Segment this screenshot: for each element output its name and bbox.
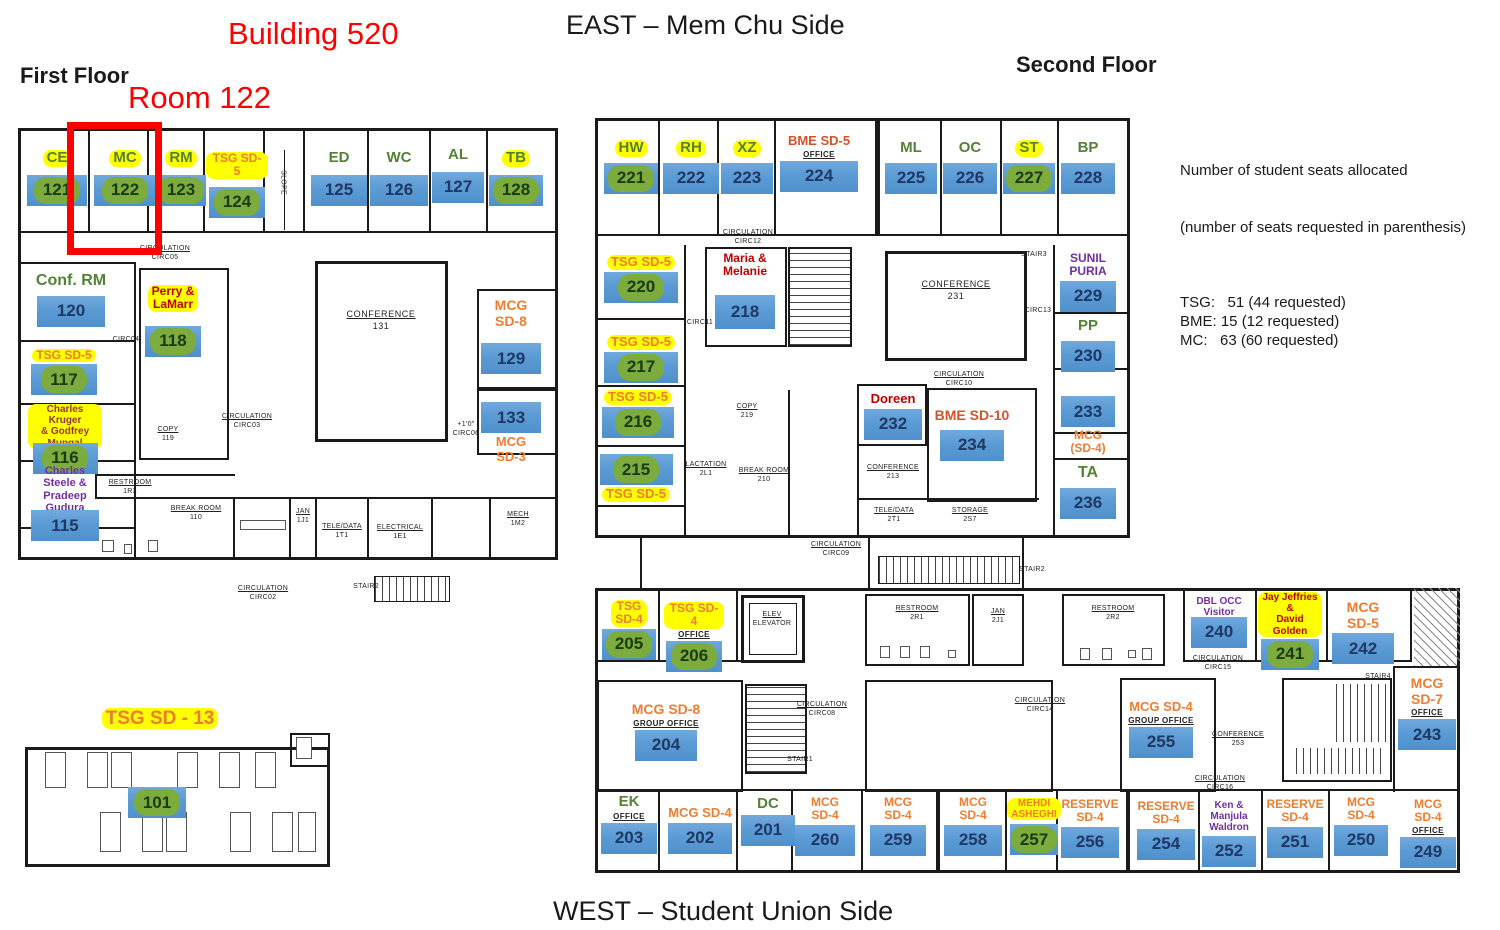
- plan-label-circulation: CIRCULATIONCIRC10: [934, 370, 984, 388]
- room-232: Doreen232: [862, 392, 924, 440]
- room-255: MCG SD-4GROUP OFFICE255: [1124, 700, 1198, 758]
- room-number-pill: 101: [134, 789, 180, 816]
- room-259: MCG SD-4259: [868, 796, 928, 856]
- west-side-label: WEST – Student Union Side: [553, 896, 893, 927]
- room-number-pill: 206: [671, 643, 717, 670]
- room-label: MCG SD-4: [1410, 798, 1446, 825]
- furniture: [45, 752, 66, 788]
- room-label: Charles Steele & Pradeep Gudura: [26, 465, 104, 514]
- wall: [640, 538, 642, 588]
- wall: [595, 318, 684, 320]
- wall: [595, 505, 684, 507]
- room-label: OC: [955, 140, 986, 157]
- room-label: Maria & Melanie: [719, 252, 771, 279]
- room-label: TSG SD-5: [32, 349, 95, 362]
- furniture: [166, 812, 187, 852]
- room-number: 260: [795, 825, 855, 856]
- room-number-pill: 257: [1011, 826, 1057, 853]
- room-label: SUNIL PURIA: [1065, 252, 1110, 279]
- first-floor-label: First Floor: [20, 63, 129, 89]
- wall: [303, 128, 305, 233]
- room-number-pill: 215: [613, 456, 659, 483]
- room-label: ED: [325, 150, 354, 167]
- plan-label-conference: CONFERENCE253: [1212, 730, 1264, 748]
- room-label: TSG SD-5: [607, 335, 675, 350]
- plan-label-circulation: CIRCULATIONCIRC08: [797, 700, 847, 718]
- furniture: [240, 520, 286, 530]
- room-number: 243: [1398, 719, 1456, 750]
- wall: [431, 497, 433, 560]
- room-label: MCG SD-8: [628, 702, 704, 718]
- room-label: ST: [1015, 140, 1042, 157]
- room-number: 124: [209, 187, 265, 218]
- room-number: 220: [604, 272, 678, 303]
- room-label: TB: [502, 150, 530, 167]
- stairs: [1296, 748, 1384, 774]
- room-225: ML225: [884, 140, 938, 194]
- room-label: MCG SD-4: [1125, 700, 1197, 715]
- wall: [936, 789, 940, 873]
- wall: [875, 118, 880, 235]
- room-number: 204: [635, 730, 697, 761]
- room-label: RM: [165, 150, 196, 167]
- room-number: 250: [1334, 825, 1388, 856]
- room-label: Ken & Manjula Waldron: [1200, 800, 1258, 834]
- wall: [1005, 789, 1007, 873]
- room-label: MEHDI ASHEGHI: [1007, 798, 1061, 820]
- room-label: MCG SD-4: [880, 796, 916, 823]
- hatched-area: [1414, 588, 1460, 666]
- room-240: DBL OCC Visitor Emeriti240: [1186, 596, 1252, 648]
- plan-label-stair2: STAIR2: [1019, 565, 1045, 574]
- wall: [233, 497, 235, 560]
- plan-label-restroom: RESTROOM2R1: [896, 604, 939, 622]
- room-number: 230: [1061, 341, 1115, 372]
- room-label: MCG SD-4: [807, 796, 843, 823]
- plan-label-circulation: CIRCULATIONCIRC02: [238, 584, 288, 602]
- room-number-pill: 227: [1006, 165, 1052, 192]
- wall: [134, 262, 136, 560]
- furniture: [142, 812, 163, 852]
- wall: [861, 789, 863, 873]
- room-133: 133MCG SD-3: [480, 400, 542, 464]
- wall: [595, 445, 684, 447]
- room-tsg-sd-13: TSG SD - 13: [92, 708, 228, 729]
- room-128: TB128: [488, 150, 544, 206]
- building-title: Building 520: [228, 16, 399, 52]
- room-label: MCG (SD-4): [1066, 429, 1109, 456]
- plan-label-restroom: RESTROOM1R3: [109, 478, 152, 496]
- room-number: 224: [780, 161, 858, 192]
- furniture: [87, 752, 108, 788]
- wall: [489, 497, 491, 560]
- room-number-pill: 220: [618, 274, 664, 301]
- room-125: ED125: [310, 150, 368, 206]
- room-number: 249: [1400, 837, 1456, 868]
- room-number: 118: [145, 326, 201, 357]
- seat-allocation-legend: Number of student seats allocated (numbe…: [1180, 123, 1466, 388]
- room-number: 127: [432, 172, 484, 203]
- wall: [1393, 666, 1395, 792]
- plan-label-circ11: CIRC11: [687, 318, 713, 327]
- plan-label-circulation: CIRCULATIONCIRC12: [723, 228, 773, 246]
- room-label: RESERVE SD-4: [1262, 798, 1327, 825]
- plan-label-circ04: CIRC04: [113, 335, 140, 344]
- room-number: 120: [37, 296, 105, 327]
- room-label: MCG SD-8: [491, 298, 532, 329]
- room-sublabel: OFFICE: [613, 812, 645, 821]
- room-sublabel: GROUP OFFICE: [633, 719, 699, 728]
- room-number: 202: [668, 823, 732, 854]
- room-number: 101: [128, 787, 186, 818]
- wall: [658, 789, 660, 873]
- room-251: RESERVE SD-4251: [1264, 798, 1326, 858]
- room-number: 203: [601, 823, 657, 854]
- room-label: BME SD-5: [784, 134, 854, 149]
- room-label: XZ: [733, 140, 760, 157]
- room-label: MCG SD-3: [480, 435, 542, 464]
- room-label: Perry & LaMarr: [148, 285, 199, 312]
- room-250: MCG SD-4250: [1332, 796, 1390, 856]
- room-number-pill: 241: [1267, 641, 1313, 668]
- room-201: DC201: [740, 796, 796, 846]
- room-number: 218: [715, 295, 775, 329]
- room-number-pill: 118: [150, 328, 195, 355]
- room-number: 227: [1003, 163, 1055, 194]
- room-218: Maria & Melanie218: [712, 252, 778, 329]
- room-number: 258: [944, 825, 1002, 856]
- room-229: SUNIL PURIA229: [1056, 252, 1120, 312]
- room-label: DC: [753, 796, 783, 813]
- room-label: MCG SD-4: [955, 796, 991, 823]
- room-124: TSG SD-5124: [206, 152, 268, 218]
- room-206: TSG SD-4OFFICE206: [664, 602, 724, 672]
- room-number: 125: [311, 175, 367, 206]
- room-120: Conf. RM120: [28, 272, 114, 327]
- plan-label-circulation: CIRCULATIONCIRC16: [1195, 774, 1245, 792]
- room-118: Perry & LaMarr118: [142, 285, 204, 357]
- room-label: MCG SD-5: [1330, 600, 1396, 631]
- furniture: [219, 752, 240, 788]
- plan-label-lactation: LACTATION2L1: [686, 460, 727, 478]
- wall: [788, 390, 790, 536]
- room-220: TSG SD-5220: [602, 255, 680, 303]
- furniture: [298, 812, 316, 852]
- plan-label-storage: STORAGE2S7: [952, 506, 988, 524]
- room-label: TA: [1074, 464, 1102, 482]
- wall: [1326, 588, 1328, 662]
- room-254: RESERVE SD-4254: [1136, 800, 1196, 860]
- legend-entry: MC: 63 (60 requested): [1180, 331, 1466, 350]
- furniture: [1128, 650, 1136, 658]
- plan-label-stair1: STAIR1: [787, 755, 813, 764]
- room-label: MCG SD-4: [1343, 796, 1379, 823]
- room-243: MCG SD-7OFFICE243: [1396, 676, 1458, 750]
- room-123: RM123: [156, 150, 206, 206]
- room-252: Ken & Manjula Waldron252: [1200, 800, 1258, 867]
- wall: [315, 261, 448, 442]
- room-label: RESERVE SD-4: [1133, 800, 1198, 827]
- room-number: 254: [1137, 829, 1195, 860]
- room-number-pill: 216: [615, 409, 661, 436]
- wall: [658, 588, 660, 660]
- plan-label-circulation: CIRCULATIONCIRC15: [1193, 654, 1243, 672]
- plan-label-circ13: CIRC13: [1025, 306, 1052, 315]
- room-label: TSG SD-5: [602, 487, 670, 502]
- room-label: EK: [615, 794, 644, 811]
- room-label: Doreen: [867, 392, 920, 407]
- wall: [367, 497, 369, 560]
- room-number: 240: [1191, 617, 1247, 648]
- furniture: [900, 646, 910, 658]
- plan-label-circulation: CIRCULATIONCIRC14: [1015, 696, 1065, 714]
- stairs: [1336, 684, 1388, 742]
- room-label: AL: [444, 147, 472, 164]
- plan-label-conference: CONFERENCE131: [346, 309, 415, 332]
- room-number: 133: [481, 402, 541, 433]
- room-223: XZ223: [720, 140, 774, 194]
- furniture: [100, 812, 121, 852]
- room-number: 251: [1267, 827, 1323, 858]
- furniture: [255, 752, 276, 788]
- room-117: TSG SD-5117: [28, 349, 100, 395]
- wall: [1183, 588, 1185, 662]
- room-number: 215: [600, 454, 673, 485]
- wall: [857, 498, 1039, 500]
- room-221: HW221: [602, 140, 660, 194]
- wall: [289, 497, 291, 560]
- room-number: 205: [602, 629, 656, 660]
- plan-label-tele-data: TELE/DATA2T1: [874, 506, 914, 524]
- legend-heading-line2: (number of seats requested in parenthesi…: [1180, 218, 1466, 237]
- room-label: Jay Jeffries & David Golden: [1258, 592, 1322, 637]
- room-sublabel: OFFICE: [1412, 826, 1444, 835]
- room-number: 123: [156, 175, 206, 206]
- furniture: [102, 540, 114, 552]
- plan-label-slope: SLOPE: [278, 170, 287, 195]
- plan-label-jan: JAN1J1: [296, 507, 310, 525]
- room-228: BP228: [1060, 140, 1116, 194]
- room-number: 206: [666, 641, 722, 672]
- room-label: MCG SD-4: [664, 806, 736, 821]
- floor-plan-canvas: Building 520 EAST – Mem Chu Side First F…: [0, 0, 1500, 930]
- room-number-pill: 117: [41, 366, 86, 393]
- wall: [736, 789, 738, 873]
- room-224: BME SD-5OFFICE224: [776, 134, 862, 192]
- room-number: 234: [940, 430, 1004, 461]
- room-122-highlight-box: [67, 122, 162, 255]
- room-256: RESERVE SD-4256: [1060, 798, 1120, 858]
- plan-label-break-room: BREAK ROOM210: [739, 466, 789, 484]
- wall: [1022, 538, 1024, 588]
- room-227: ST227: [1002, 140, 1056, 194]
- room-label: TSG SD-4: [664, 602, 724, 629]
- plan-label-tele-data: TELE/DATA1T1: [322, 522, 362, 540]
- room-label: HW: [615, 140, 648, 157]
- room-202: MCG SD-4202: [664, 806, 736, 854]
- room-number: 256: [1061, 827, 1119, 858]
- room-label: RESERVE SD-4: [1057, 798, 1122, 825]
- room-215: 215TSG SD-5: [598, 452, 674, 502]
- wall: [1053, 312, 1130, 314]
- wall: [1053, 245, 1055, 536]
- room-number: 242: [1332, 633, 1394, 664]
- wall: [315, 497, 317, 560]
- room-number-pill: 205: [606, 631, 652, 658]
- furniture: [880, 646, 890, 658]
- room-number: 252: [1202, 836, 1256, 867]
- room-number: 126: [370, 175, 428, 206]
- plan-label-circulation: CIRCULATIONCIRC03: [222, 412, 272, 430]
- room-label: TSG SD - 13: [102, 708, 219, 729]
- plan-label-electrical: ELECTRICAL1E1: [377, 523, 423, 541]
- room-216: TSG SD-5216: [600, 390, 676, 438]
- wall: [857, 446, 859, 536]
- room-number: 257: [1010, 824, 1058, 855]
- plan-label-restroom: RESTROOM2R2: [1092, 604, 1135, 622]
- room-sublabel: OFFICE: [1411, 708, 1443, 717]
- legend-heading-line1: Number of student seats allocated: [1180, 161, 1466, 180]
- room-number: 233: [1061, 396, 1115, 427]
- room-234: BME SD-10234: [928, 408, 1016, 461]
- room-label: Conf. RM: [32, 272, 110, 290]
- room-258: MCG SD-4258: [942, 796, 1004, 856]
- room-127: AL127: [430, 147, 486, 203]
- second-floor-label: Second Floor: [1016, 52, 1157, 78]
- room-205: TSG SD-4205: [600, 600, 658, 660]
- room-label: BME SD-10: [931, 408, 1014, 424]
- legend-entries: TSG: 51 (44 requested)BME: 15 (12 reques…: [1180, 293, 1466, 350]
- furniture: [1142, 648, 1152, 660]
- wall: [1053, 458, 1130, 460]
- furniture: [230, 812, 251, 852]
- room-number-pill: 221: [608, 165, 654, 192]
- plan-label-conference: CONFERENCE231: [921, 279, 990, 302]
- wall: [1328, 789, 1330, 873]
- room-sublabel: OFFICE: [803, 150, 835, 159]
- room-label: WC: [383, 150, 416, 167]
- plan-label-copy: COPY219: [736, 402, 757, 420]
- room-257: MEHDI ASHEGHI257: [1008, 798, 1060, 855]
- stairs: [374, 576, 450, 602]
- room-number: 216: [602, 407, 674, 438]
- legend-entry: TSG: 51 (44 requested): [1180, 293, 1466, 312]
- room-number: 117: [31, 364, 97, 395]
- room-101: 101: [126, 785, 188, 818]
- room-number: 259: [870, 825, 926, 856]
- wall: [736, 588, 738, 660]
- wall: [595, 789, 1460, 791]
- room-number: 241: [1261, 639, 1319, 670]
- room-204: MCG SD-8GROUP OFFICE204: [620, 702, 712, 761]
- room-number-pill: 124: [214, 189, 260, 216]
- wall: [18, 262, 136, 264]
- plan-label-circulation: CIRCULATIONCIRC09: [811, 540, 861, 558]
- room-129: MCG SD-8129: [480, 298, 542, 374]
- plan-label-mech: MECH1M2: [507, 510, 529, 528]
- room-122-callout: Room 122: [128, 80, 271, 116]
- room-label: TSG SD-5: [206, 152, 268, 179]
- room-number: 217: [604, 352, 678, 383]
- wall: [1126, 789, 1130, 873]
- room-number: 221: [604, 163, 658, 194]
- room-233: 233MCG (SD-4): [1058, 394, 1118, 456]
- furniture: [1080, 648, 1090, 660]
- stairs: [878, 556, 1020, 584]
- plan-label-break-room: BREAK ROOM110: [171, 504, 221, 522]
- plan-label-copy: COPY119: [157, 425, 178, 443]
- furniture: [148, 540, 158, 552]
- plan-label-stair2: STAIR2: [353, 582, 379, 591]
- room-label: TSG SD-5: [607, 255, 675, 270]
- wall: [972, 594, 1024, 666]
- furniture: [920, 646, 930, 658]
- room-label: BP: [1074, 140, 1103, 157]
- wall: [95, 474, 235, 476]
- furniture: [124, 544, 132, 554]
- room-241: Jay Jeffries & David Golden241: [1258, 592, 1322, 670]
- room-number: 223: [721, 163, 773, 194]
- room-236: TA236: [1058, 464, 1118, 519]
- room-242: MCG SD-5242: [1330, 600, 1396, 664]
- room-222: RH222: [662, 140, 720, 194]
- room-number-pill: 217: [618, 354, 664, 381]
- room-number-pill: 123: [158, 177, 204, 204]
- room-260: MCG SD-4260: [794, 796, 856, 856]
- wall: [1393, 666, 1460, 668]
- room-number: 236: [1060, 488, 1116, 519]
- wall: [1410, 588, 1412, 662]
- plan-label-stair3: STAIR3: [1021, 250, 1047, 259]
- room-label: PP: [1074, 318, 1102, 335]
- furniture: [111, 752, 132, 788]
- room-number: 229: [1060, 281, 1116, 312]
- room-label: TSG SD-5: [604, 390, 672, 405]
- room-number: 232: [864, 409, 922, 440]
- wall: [885, 251, 1027, 361]
- room-number: 255: [1129, 727, 1193, 758]
- room-126: WC126: [370, 150, 428, 206]
- room-sublabel: OFFICE: [678, 630, 710, 639]
- room-number: 222: [663, 163, 719, 194]
- plan-label-jan: JAN2J1: [991, 607, 1005, 625]
- furniture: [1102, 648, 1112, 660]
- plan-label-conference: CONFERENCE213: [867, 463, 919, 481]
- room-number: 201: [741, 815, 795, 846]
- wall: [1057, 118, 1059, 235]
- room-number: 128: [489, 175, 543, 206]
- furniture: [272, 812, 293, 852]
- room-label: MCG SD-7: [1407, 676, 1448, 707]
- room-label: TSG SD-4: [611, 600, 646, 627]
- room-label: ML: [896, 140, 926, 157]
- wall: [595, 234, 1130, 236]
- furniture: [296, 737, 312, 759]
- room-217: TSG SD-5217: [602, 335, 680, 383]
- room-230: PP230: [1058, 318, 1118, 372]
- plan-label-elev: ELEVELEVATOR: [753, 610, 792, 628]
- room-249: MCG SD-4OFFICE249: [1398, 798, 1458, 868]
- wall: [1255, 588, 1257, 662]
- room-number: 228: [1061, 163, 1115, 194]
- room-number: 129: [481, 343, 541, 374]
- room-sublabel: GROUP OFFICE: [1128, 716, 1194, 725]
- east-side-label: EAST – Mem Chu Side: [566, 10, 845, 41]
- furniture: [948, 650, 956, 658]
- wall: [684, 245, 686, 536]
- legend-entry: BME: 15 (12 requested): [1180, 312, 1466, 331]
- wall: [868, 538, 870, 588]
